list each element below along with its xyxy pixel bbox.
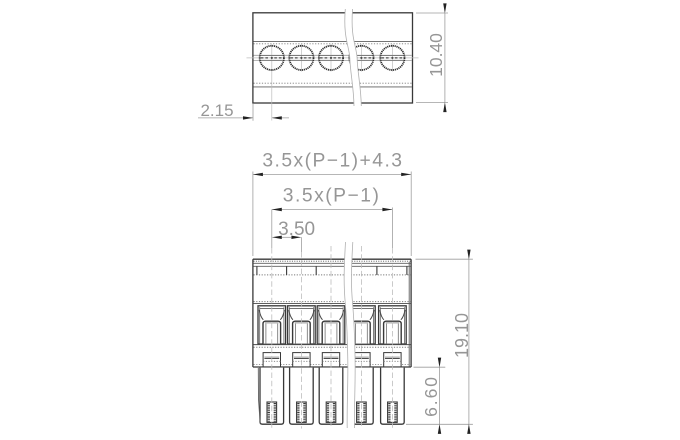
svg-text:6.60: 6.60 (421, 375, 441, 417)
svg-text:10.40: 10.40 (426, 33, 446, 77)
svg-text:2.15: 2.15 (200, 101, 233, 120)
svg-text:3.5x(P−1)+4.3: 3.5x(P−1)+4.3 (262, 151, 403, 172)
svg-text:19.10: 19.10 (452, 313, 472, 358)
svg-text:3.5x(P−1): 3.5x(P−1) (283, 186, 381, 207)
